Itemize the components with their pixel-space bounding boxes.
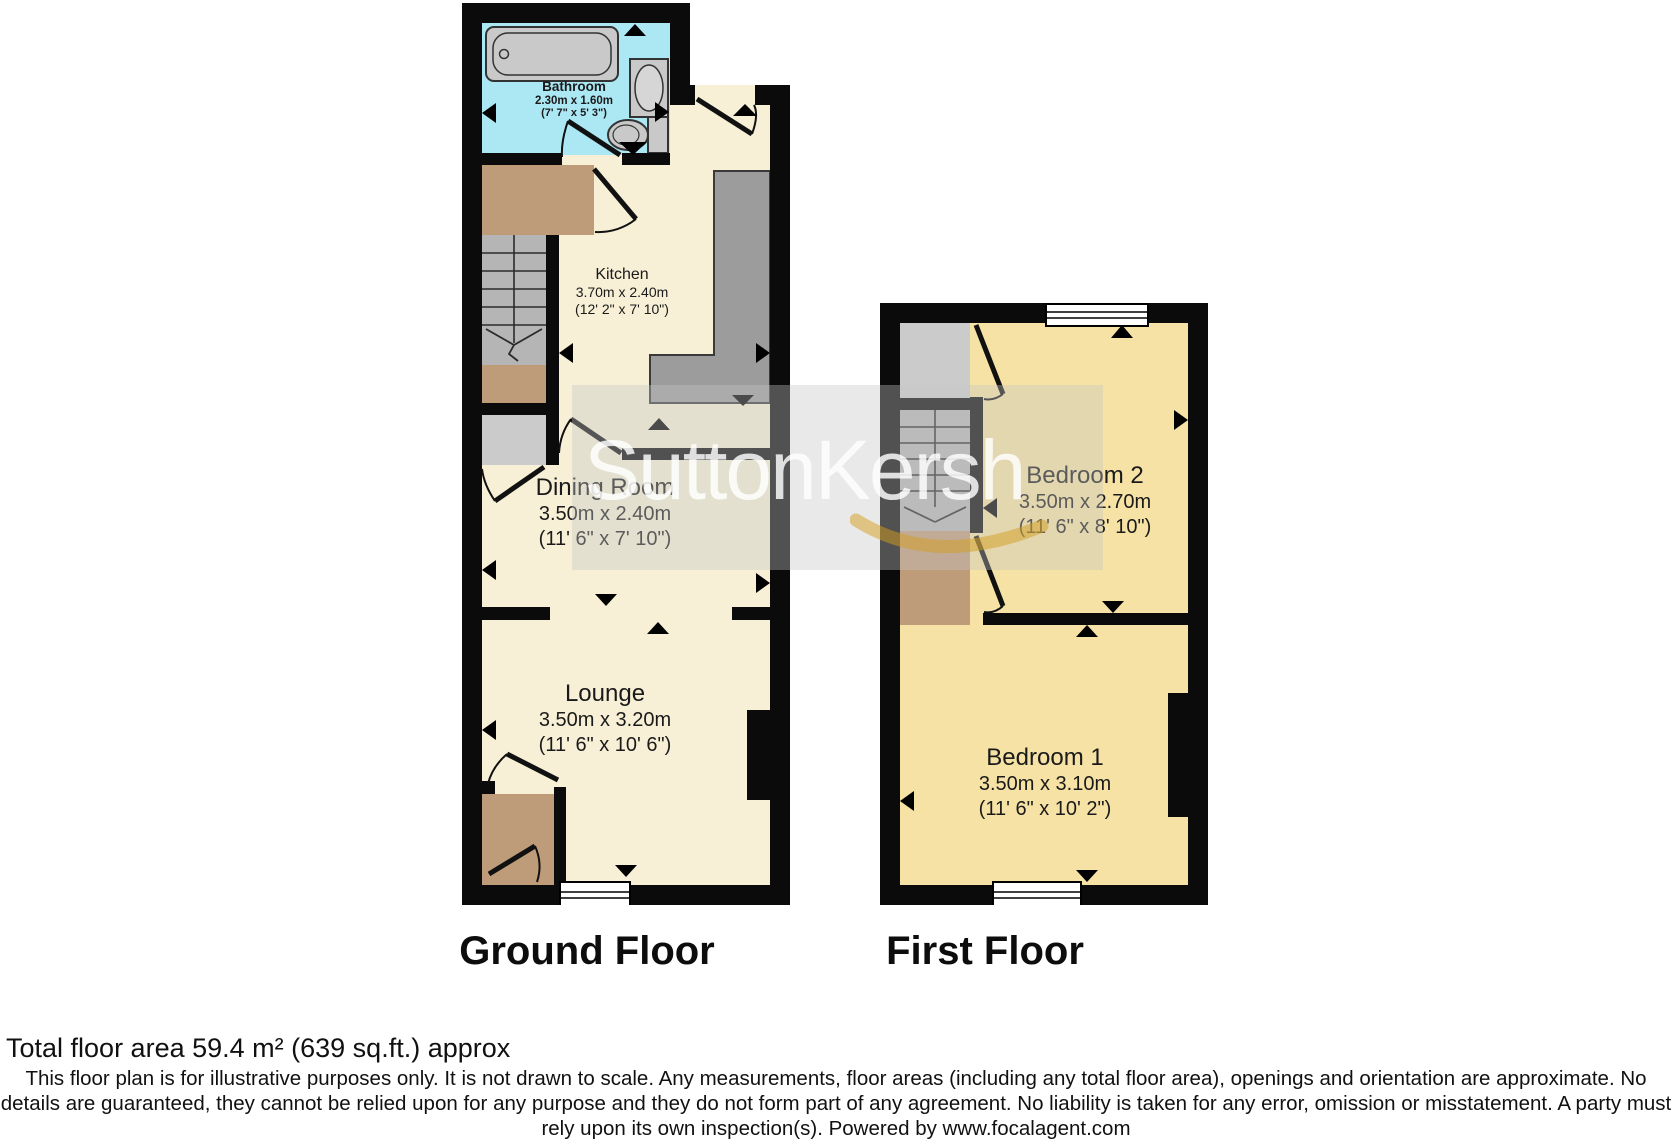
kitchen-metric: 3.70m x 2.40m (576, 284, 669, 300)
watermark-text: SuttonKersh (584, 426, 1104, 514)
bathtub-icon (486, 27, 618, 81)
bedroom1-label: Bedroom 1 (986, 744, 1103, 771)
lounge-label: Lounge (565, 680, 645, 707)
stair-landing-floor (482, 365, 546, 403)
bathroom-metric: 2.30m x 1.60m (535, 95, 613, 107)
lounge-imperial: (11' 6" x 10' 6") (539, 734, 672, 756)
staircase-down (482, 235, 546, 365)
floorplan-page: Bathroom 2.30m x 1.60m (7' 7" x 5' 3") K… (0, 0, 1672, 1144)
lounge-window (560, 882, 630, 905)
bedroom2-window (1046, 304, 1148, 326)
kitchen-label: Kitchen (595, 266, 648, 283)
bedroom1-imperial: (11' 6" x 10' 2") (979, 798, 1112, 820)
understairs-closet (482, 415, 546, 465)
hallway-floor (482, 165, 594, 235)
total-floor-area: Total floor area 59.4 m² (639 sq.ft.) ap… (6, 1033, 510, 1064)
kitchen-imperial: (12' 2" x 7' 10") (575, 301, 669, 317)
ground-floor-title: Ground Floor (459, 929, 715, 974)
exterior-notch (690, 3, 790, 85)
disclaimer-text: This floor plan is for illustrative purp… (0, 1066, 1672, 1141)
bathroom-label: Bathroom (542, 79, 606, 94)
bedroom1-metric: 3.50m x 3.10m (979, 773, 1111, 795)
bedroom1-window (993, 882, 1081, 905)
first-floor-title: First Floor (886, 929, 1084, 974)
chimney-breast (1168, 693, 1188, 817)
lounge-metric: 3.50m x 3.20m (539, 709, 671, 731)
bathroom-imperial: (7' 7" x 5' 3") (541, 107, 607, 119)
chimney-breast (747, 710, 770, 800)
